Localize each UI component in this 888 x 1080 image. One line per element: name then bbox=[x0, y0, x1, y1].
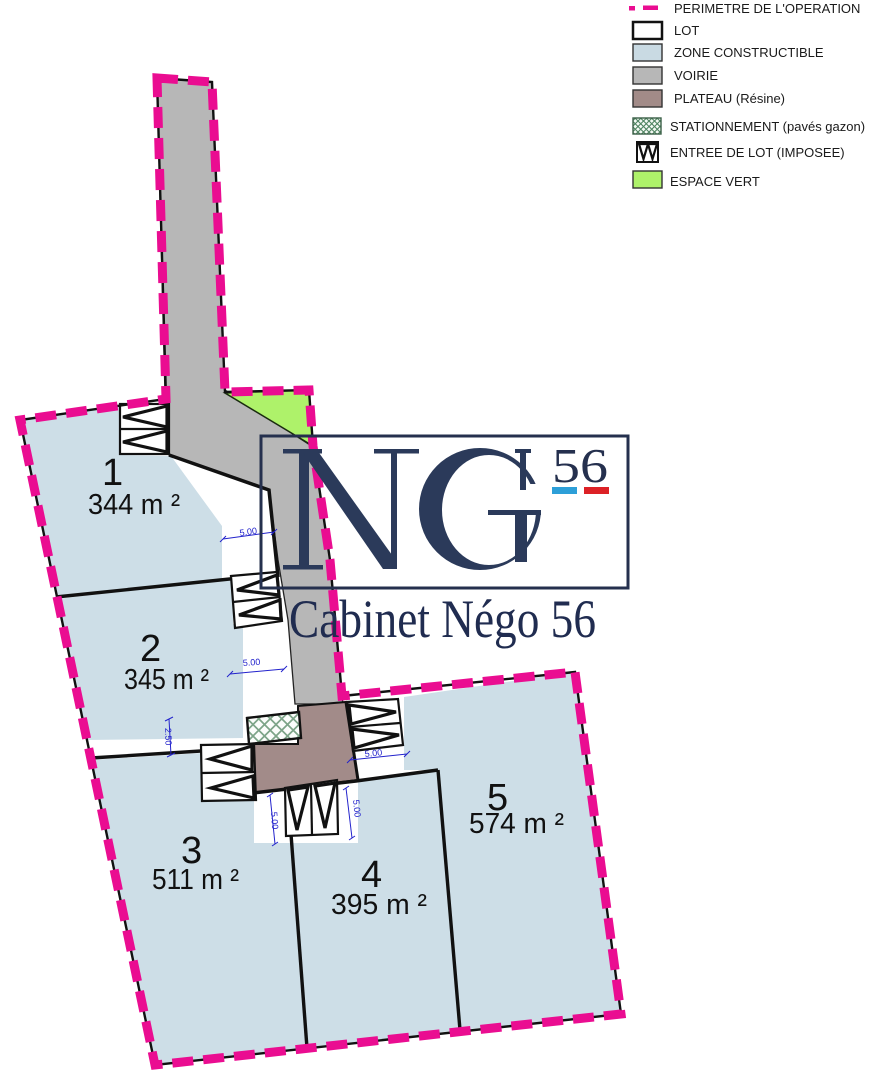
svg-text:2.50: 2.50 bbox=[163, 728, 174, 746]
svg-text:344 m ²: 344 m ² bbox=[88, 489, 180, 521]
svg-text:Cabinet Négo 56: Cabinet Négo 56 bbox=[289, 589, 596, 649]
svg-text:LOT: LOT bbox=[674, 23, 699, 38]
svg-text:ESPACE VERT: ESPACE VERT bbox=[670, 174, 760, 189]
svg-text:VOIRIE: VOIRIE bbox=[674, 68, 718, 83]
svg-text:PLATEAU (Résine): PLATEAU (Résine) bbox=[674, 91, 785, 106]
svg-text:5.00: 5.00 bbox=[351, 799, 363, 817]
svg-text:ENTREE DE LOT (IMPOSEE): ENTREE DE LOT (IMPOSEE) bbox=[670, 145, 845, 160]
svg-text:STATIONNEMENT (pavés gazon): STATIONNEMENT (pavés gazon) bbox=[670, 119, 865, 134]
svg-text:5.00: 5.00 bbox=[364, 747, 382, 759]
svg-text:574 m ²: 574 m ² bbox=[469, 808, 564, 840]
svg-text:PERIMETRE DE L'OPERATION: PERIMETRE DE L'OPERATION bbox=[674, 1, 860, 16]
svg-text:5.00: 5.00 bbox=[269, 811, 280, 829]
svg-text:511 m ²: 511 m ² bbox=[152, 864, 239, 896]
svg-text:ZONE CONSTRUCTIBLE: ZONE CONSTRUCTIBLE bbox=[674, 45, 824, 60]
svg-text:5.00: 5.00 bbox=[242, 657, 260, 668]
svg-text:56: 56 bbox=[552, 438, 608, 493]
svg-text:395 m ²: 395 m ² bbox=[331, 889, 427, 921]
svg-text:345 m ²: 345 m ² bbox=[124, 664, 209, 696]
svg-text:1: 1 bbox=[102, 452, 123, 494]
